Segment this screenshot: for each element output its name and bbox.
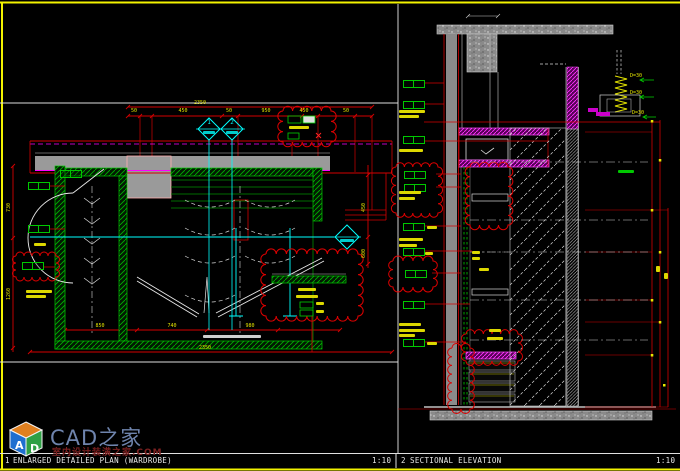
annotation-blob [427, 226, 437, 229]
annotation-blob [289, 126, 309, 129]
annotation-blob [399, 197, 415, 200]
dimension-text: 730 [7, 203, 12, 212]
annotation-blob [203, 335, 261, 338]
annotation-blob [472, 257, 480, 260]
detail-label: D=30 [630, 91, 642, 96]
finish-tag [403, 80, 425, 88]
annotation-blob [399, 149, 423, 152]
dimension-text: 2350 [199, 346, 211, 351]
annotation-blob [226, 131, 238, 134]
annotation-blob [489, 329, 501, 332]
finish-tag [404, 171, 426, 179]
annotation-blob [425, 252, 433, 255]
plan-dimensions [11, 105, 394, 354]
annotation-blob [618, 170, 634, 173]
annotation-blob [340, 239, 354, 242]
dimension-text: 50 [226, 109, 232, 114]
dimension-text: 850 [95, 324, 104, 329]
finish-tag [403, 248, 425, 256]
annotation-blob [399, 110, 425, 113]
annotation-blob [664, 273, 668, 279]
annotation-blob [472, 251, 480, 254]
section-marker-number: 2 [230, 120, 234, 126]
finish-tag [403, 223, 425, 231]
annotation-blob [399, 323, 421, 326]
finish-tag [403, 136, 425, 144]
finish-tag [403, 301, 425, 309]
elevation-title: SECTIONAL ELEVATION [410, 456, 502, 465]
annotation-blob [427, 342, 437, 345]
elevation-top-detail [588, 50, 656, 119]
dimension-text: 50 [131, 109, 137, 114]
annotation-blob [479, 268, 489, 271]
plan-scale: 1:10 [372, 456, 391, 465]
annotation-blob [296, 295, 318, 298]
dimension-text: 450 [299, 109, 308, 114]
annotation-blob [656, 266, 660, 272]
dimension-text: 1260 [7, 288, 12, 300]
annotation-blob [399, 191, 421, 194]
finish-tag [403, 339, 425, 347]
annotation-blob [399, 329, 425, 332]
elevation-scale: 1:10 [656, 456, 675, 465]
finish-tag [403, 101, 425, 109]
finish-tag [28, 225, 50, 233]
section-marker-number: 1 [207, 120, 211, 126]
finish-tag [22, 262, 44, 270]
annotation-blob [487, 337, 503, 340]
watermark-subtitle: 室内设计装潢之家.COM [52, 445, 163, 458]
cube-letter-d: D [30, 442, 39, 455]
annotation-blob [316, 310, 324, 313]
dimension-text: 950 [261, 109, 270, 114]
annotation-blob [316, 302, 324, 305]
annotation-blob [399, 334, 415, 337]
watermark: A D CAD之家 室内设计装潢之家.COM [6, 420, 246, 466]
annotation-blob [203, 131, 215, 134]
dimension-text: 50 [343, 109, 349, 114]
annotation-blob [399, 238, 423, 241]
plan-doors [28, 169, 324, 317]
finish-tag [60, 170, 82, 178]
watermark-cube-logo: A D [6, 420, 46, 460]
dimension-text: 2350 [194, 101, 206, 106]
finish-tag [405, 270, 427, 278]
elevation-drawing-number: 2 [401, 456, 406, 465]
cad-drawing-canvas: 2350 50 450 50 950 450 50 850 740 980 23… [0, 0, 680, 471]
dimension-text: 450 [178, 109, 187, 114]
dimension-text: 980 [245, 324, 254, 329]
detail-label: D=30 [632, 111, 644, 116]
annotation-blob [26, 290, 52, 293]
cube-letter-a: A [15, 439, 24, 452]
detail-label: D=30 [630, 74, 642, 79]
dimension-text: 740 [167, 324, 176, 329]
finish-tag [28, 182, 50, 190]
drawing-graphics [0, 0, 680, 471]
annotation-blob [399, 244, 417, 247]
annotation-blob [26, 295, 46, 298]
annotation-blob [298, 288, 316, 291]
elevation-cabinet [459, 64, 579, 406]
annotation-blob [34, 243, 46, 246]
dimension-text: 450 [362, 203, 367, 212]
plan-section-markers [30, 118, 361, 330]
dimension-text: 600 [362, 249, 367, 258]
annotation-blob [399, 115, 419, 118]
